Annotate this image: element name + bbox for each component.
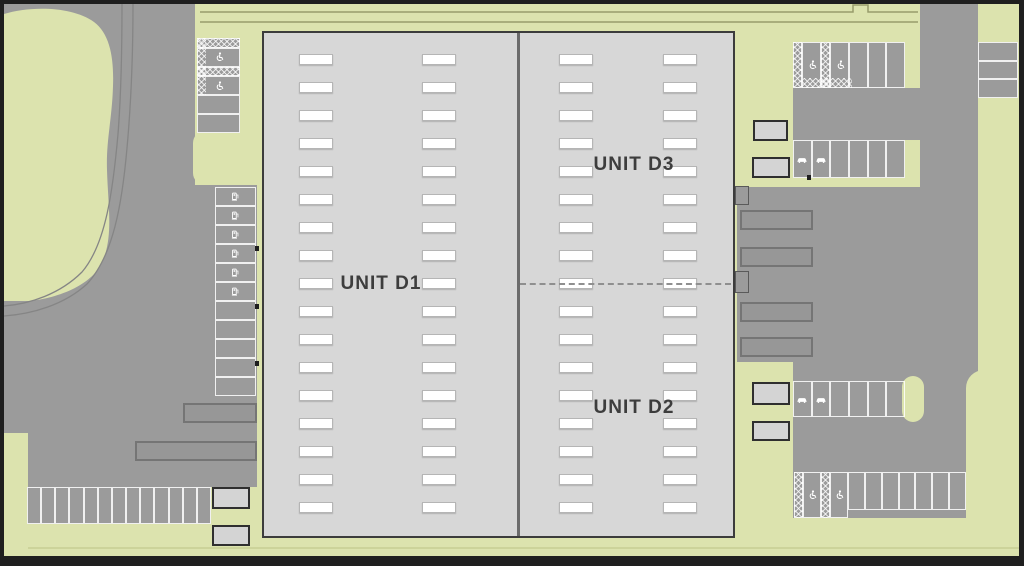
attenuation-pond: [4, 9, 113, 301]
parking-bay: [154, 487, 168, 524]
roof-vent: [299, 390, 333, 401]
hatch-marking: [802, 78, 852, 88]
accessible-parking-bay: [803, 472, 821, 518]
roof-vent: [663, 306, 697, 317]
roof-vent: [422, 306, 456, 317]
parking-bay: [868, 140, 887, 178]
roof-vent: [422, 138, 456, 149]
roof-vent: [663, 250, 697, 261]
parking-bay: [949, 472, 966, 510]
plan-frame-right: [1019, 0, 1024, 566]
plan-frame-left: [0, 0, 4, 566]
parking-group-west-column: [215, 187, 256, 396]
trailer-bay: [740, 302, 813, 322]
roof-vent: [663, 138, 697, 149]
roof-vent: [663, 474, 697, 485]
ev-parking-bay: [215, 263, 256, 282]
parking-bay: [41, 487, 55, 524]
ev-charger-icon: [231, 268, 240, 277]
roof-vent: [559, 474, 593, 485]
roof-vent: [559, 334, 593, 345]
wheelchair-icon: [834, 490, 844, 500]
parking-group-southwest-row: [27, 487, 211, 524]
car-parking-bay: [793, 140, 812, 178]
roof-vent: [422, 418, 456, 429]
parking-bay: [112, 487, 126, 524]
roof-vent: [559, 194, 593, 205]
wheelchair-icon: [214, 52, 224, 62]
boundary-fence-top: [200, 5, 918, 12]
roof-vent: [299, 502, 333, 513]
roof-vent: [299, 446, 333, 457]
roof-vent: [422, 390, 456, 401]
roof-vent: [559, 502, 593, 513]
roof-vent: [663, 502, 697, 513]
roof-vent: [422, 446, 456, 457]
trailer-bay: [740, 337, 813, 357]
dock-stair-notch: [735, 271, 749, 293]
roof-vent: [299, 82, 333, 93]
unit-label-d2: UNIT D2: [594, 397, 675, 419]
roof-vent: [559, 390, 593, 401]
roof-vent: [299, 334, 333, 345]
trailer-bay: [135, 441, 257, 461]
unit-label-d3: UNIT D3: [594, 154, 675, 176]
roof-vent: [422, 362, 456, 373]
parking-bay: [140, 487, 154, 524]
ancillary-building: [212, 487, 250, 509]
bay-marker-dot: [807, 175, 811, 180]
parking-bay: [899, 472, 916, 510]
parking-bay: [197, 487, 211, 524]
parking-bay: [868, 381, 887, 417]
dock-stair-notch: [735, 186, 749, 205]
hatch-marking: [197, 38, 206, 95]
parking-bay: [932, 472, 949, 510]
trailer-bay: [740, 210, 813, 230]
roof-vent: [663, 362, 697, 373]
roof-vent: [663, 446, 697, 457]
plan-frame-top: [0, 0, 1024, 4]
ancillary-building: [752, 157, 790, 178]
parking-bay: [915, 472, 932, 510]
parking-bay: [197, 95, 240, 114]
roof-vent: [299, 222, 333, 233]
roof-vent: [299, 138, 333, 149]
roof-vent: [559, 250, 593, 261]
unit-label-d1: UNIT D1: [341, 273, 422, 295]
car-parking-bay: [812, 140, 831, 178]
parking-bay: [882, 472, 899, 510]
roof-vent: [422, 82, 456, 93]
roof-vent: [422, 54, 456, 65]
car-icon: [796, 395, 808, 404]
car-parking-bay: [812, 381, 831, 417]
accessible-parking-bay: [830, 472, 848, 518]
wall-tick: [255, 246, 259, 251]
roof-vent: [559, 110, 593, 121]
ev-parking-bay: [215, 244, 256, 263]
parking-bay: [98, 487, 112, 524]
ev-charger-icon: [231, 287, 240, 296]
roof-vent: [299, 250, 333, 261]
parking-group-northeast-ev-row: [793, 140, 905, 178]
roof-vent: [299, 362, 333, 373]
trailer-bay: [183, 403, 257, 423]
parking-bay: [126, 487, 140, 524]
roof-vent: [422, 474, 456, 485]
parking-group-southeast-row: [848, 472, 966, 510]
roof-vent: [663, 194, 697, 205]
parking-bay: [215, 320, 256, 339]
ev-parking-bay: [215, 282, 256, 301]
roof-vent: [559, 418, 593, 429]
parking-bay: [848, 472, 865, 510]
parking-bay: [27, 487, 41, 524]
ev-parking-bay: [215, 187, 256, 206]
hatch-marking: [821, 472, 830, 518]
parking-group-nw-block: [197, 38, 240, 133]
ev-charger-icon: [231, 211, 240, 220]
roof-vent: [422, 502, 456, 513]
ev-parking-bay: [215, 225, 256, 244]
roof-vent: [299, 418, 333, 429]
roof-vent: [559, 82, 593, 93]
roof-vent: [559, 446, 593, 457]
building-unit-d: UNIT D1 UNIT D3 UNIT D2: [262, 31, 735, 538]
parking-bay: [830, 140, 849, 178]
parking-bay: [55, 487, 69, 524]
ancillary-building: [752, 421, 790, 441]
roof-vent: [422, 222, 456, 233]
roof-vent: [663, 334, 697, 345]
car-parking-bay: [793, 381, 812, 417]
roof-vent: [559, 306, 593, 317]
trailer-bay: [740, 247, 813, 267]
roof-vent: [663, 82, 697, 93]
parking-bay: [215, 377, 256, 396]
roof-vent: [299, 278, 333, 289]
parking-bay: [978, 42, 1018, 61]
parking-bay: [830, 381, 849, 417]
parking-group-far-east-column: [978, 42, 1018, 98]
roof-vent: [559, 54, 593, 65]
wheelchair-icon: [214, 81, 224, 91]
roof-vent: [299, 166, 333, 177]
parking-bay: [183, 487, 197, 524]
roof-vent: [422, 334, 456, 345]
roof-vent: [299, 54, 333, 65]
roof-vent: [299, 306, 333, 317]
roof-vent: [422, 194, 456, 205]
roof-vent: [422, 250, 456, 261]
parking-bay: [197, 114, 240, 133]
parking-bay: [215, 358, 256, 377]
ancillary-building: [752, 382, 790, 405]
hatch-marking: [794, 472, 803, 518]
unit-d2-d3-dashed-divider: [520, 283, 731, 285]
parking-bay: [69, 487, 83, 524]
car-icon: [815, 395, 827, 404]
parking-group-southeast-accessible: [794, 472, 848, 518]
site-plan: UNIT D1 UNIT D3 UNIT D2: [0, 0, 1024, 566]
ev-charger-icon: [231, 230, 240, 239]
parking-bay: [169, 487, 183, 524]
wheelchair-icon: [835, 60, 845, 70]
parking-bay: [865, 472, 882, 510]
roof-vent: [663, 222, 697, 233]
hatch-marking: [793, 42, 802, 88]
roof-vent: [663, 110, 697, 121]
parking-bay: [978, 79, 1018, 98]
roof-vent: [299, 194, 333, 205]
ev-charger-icon: [231, 192, 240, 201]
roof-vent: [422, 166, 456, 177]
parking-bay: [215, 339, 256, 358]
roof-vent: [559, 138, 593, 149]
parking-bay: [215, 301, 256, 320]
plan-frame-bottom: [0, 556, 1024, 566]
roof-vent: [559, 362, 593, 373]
parking-group-east-mid-row: [793, 381, 905, 417]
roof-vent: [422, 278, 456, 289]
ev-charger-icon: [231, 249, 240, 258]
roof-vent: [422, 110, 456, 121]
parking-bay: [849, 381, 868, 417]
roof-vent: [663, 54, 697, 65]
wall-tick: [255, 361, 259, 366]
wall-tick: [255, 304, 259, 309]
parking-bay: [886, 381, 905, 417]
ev-parking-bay: [215, 206, 256, 225]
ancillary-building: [753, 120, 788, 141]
wheelchair-icon: [807, 60, 817, 70]
car-icon: [815, 155, 827, 164]
parking-group-northeast-block: [793, 42, 905, 88]
roof-vent: [663, 418, 697, 429]
roof-vent: [299, 474, 333, 485]
ancillary-building: [212, 525, 250, 546]
parking-bay: [978, 61, 1018, 80]
car-icon: [796, 155, 808, 164]
roof-vent: [559, 222, 593, 233]
parking-bay: [886, 140, 905, 178]
parking-bay: [886, 42, 905, 88]
wheelchair-icon: [807, 490, 817, 500]
parking-bay: [84, 487, 98, 524]
parking-bay: [849, 140, 868, 178]
parking-bay: [868, 42, 887, 88]
roof-vent: [559, 166, 593, 177]
roof-vent: [299, 110, 333, 121]
